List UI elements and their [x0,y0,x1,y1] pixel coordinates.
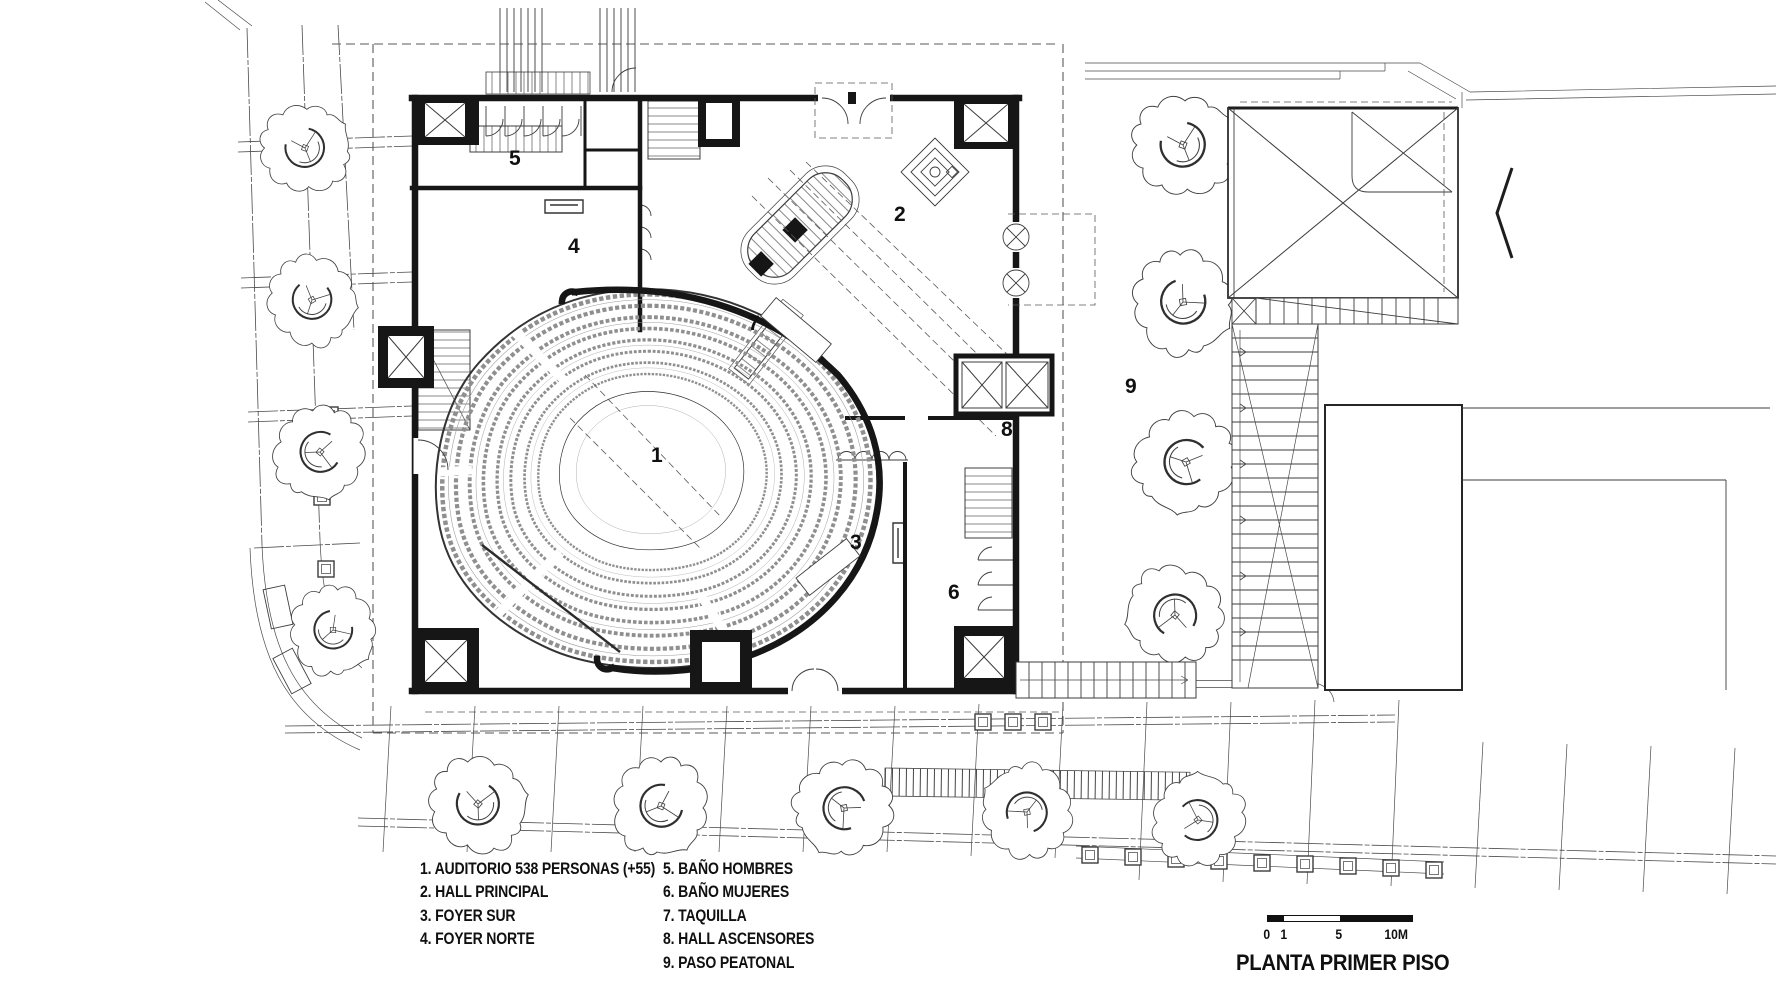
room-label-3: 3 [850,531,862,554]
scale-label-10m: 10M [1384,927,1408,942]
tree [278,574,387,685]
legend-column-2: 5. BAÑO HOMBRES 6. BAÑO MUJERES 7. TAQUI… [663,858,814,975]
room-label-1: 1 [651,444,663,467]
tree [778,743,909,872]
legend-item: 3. FOYER SUR [420,905,655,928]
north-ramp-lines [486,8,636,94]
room-label-2: 2 [894,203,906,226]
scale-bar-segment [1341,915,1413,922]
walkway-band-1 [285,715,1395,733]
legend-item: 4. FOYER NORTE [420,928,655,951]
room-label-4: 4 [568,235,580,258]
legend-item: 7. TAQUILLA [663,905,814,928]
legend-item: 5. BAÑO HOMBRES [663,858,814,881]
theater-building [378,8,1196,698]
tree [416,744,540,865]
tree [260,105,350,191]
scale-bar-segment [1283,915,1341,922]
legend-item: 6. BAÑO MUJERES [663,881,814,904]
tree [250,238,374,361]
tree [262,393,377,510]
drawing-title: PLANTA PRIMER PISO [1236,950,1449,976]
pedestrian-stair-top [1232,298,1458,324]
room-label-6: 6 [948,581,960,604]
scale-label-1: 1 [1280,927,1287,942]
scale-label-5: 5 [1335,927,1342,942]
scale-bar-segment [1267,915,1283,922]
legend-item: 9. PASO PEATONAL [663,952,814,975]
tree [966,750,1089,875]
paver-band [1076,846,1444,878]
room-label-9: 9 [1125,375,1137,398]
legend-item: 1. AUDITORIO 538 PERSONAS (+55) [420,858,655,881]
street-edge-mark [1497,168,1512,258]
tree [614,757,707,855]
room-label-8: 8 [1001,418,1013,441]
elevator-hall-block [956,356,1052,414]
neighbor-building-south [1325,405,1770,690]
floor-plan-sheet: 1 2 3 4 5 6 7 8 9 1. AUDITORIO 538 PERSO… [0,0,1776,1006]
scale-bar: 0 1 5 10M [1267,915,1413,949]
neighbor-building-roof [1228,102,1458,298]
tree [1132,96,1234,194]
room-label-5: 5 [509,147,521,170]
east-exterior-stair [1016,662,1196,698]
room-label-7: 7 [748,312,760,335]
legend-item: 8. HALL ASCENSORES [663,928,814,951]
legend-item: 2. HALL PRINCIPAL [420,881,655,904]
pedestrian-stair-vertical [1232,324,1318,688]
legend-column-1: 1. AUDITORIO 538 PERSONAS (+55) 2. HALL … [420,858,655,952]
scale-label-0: 0 [1263,927,1270,942]
tree [1113,554,1237,675]
floor-plan-drawing: 1 2 3 4 5 6 7 8 9 [0,0,1776,1006]
